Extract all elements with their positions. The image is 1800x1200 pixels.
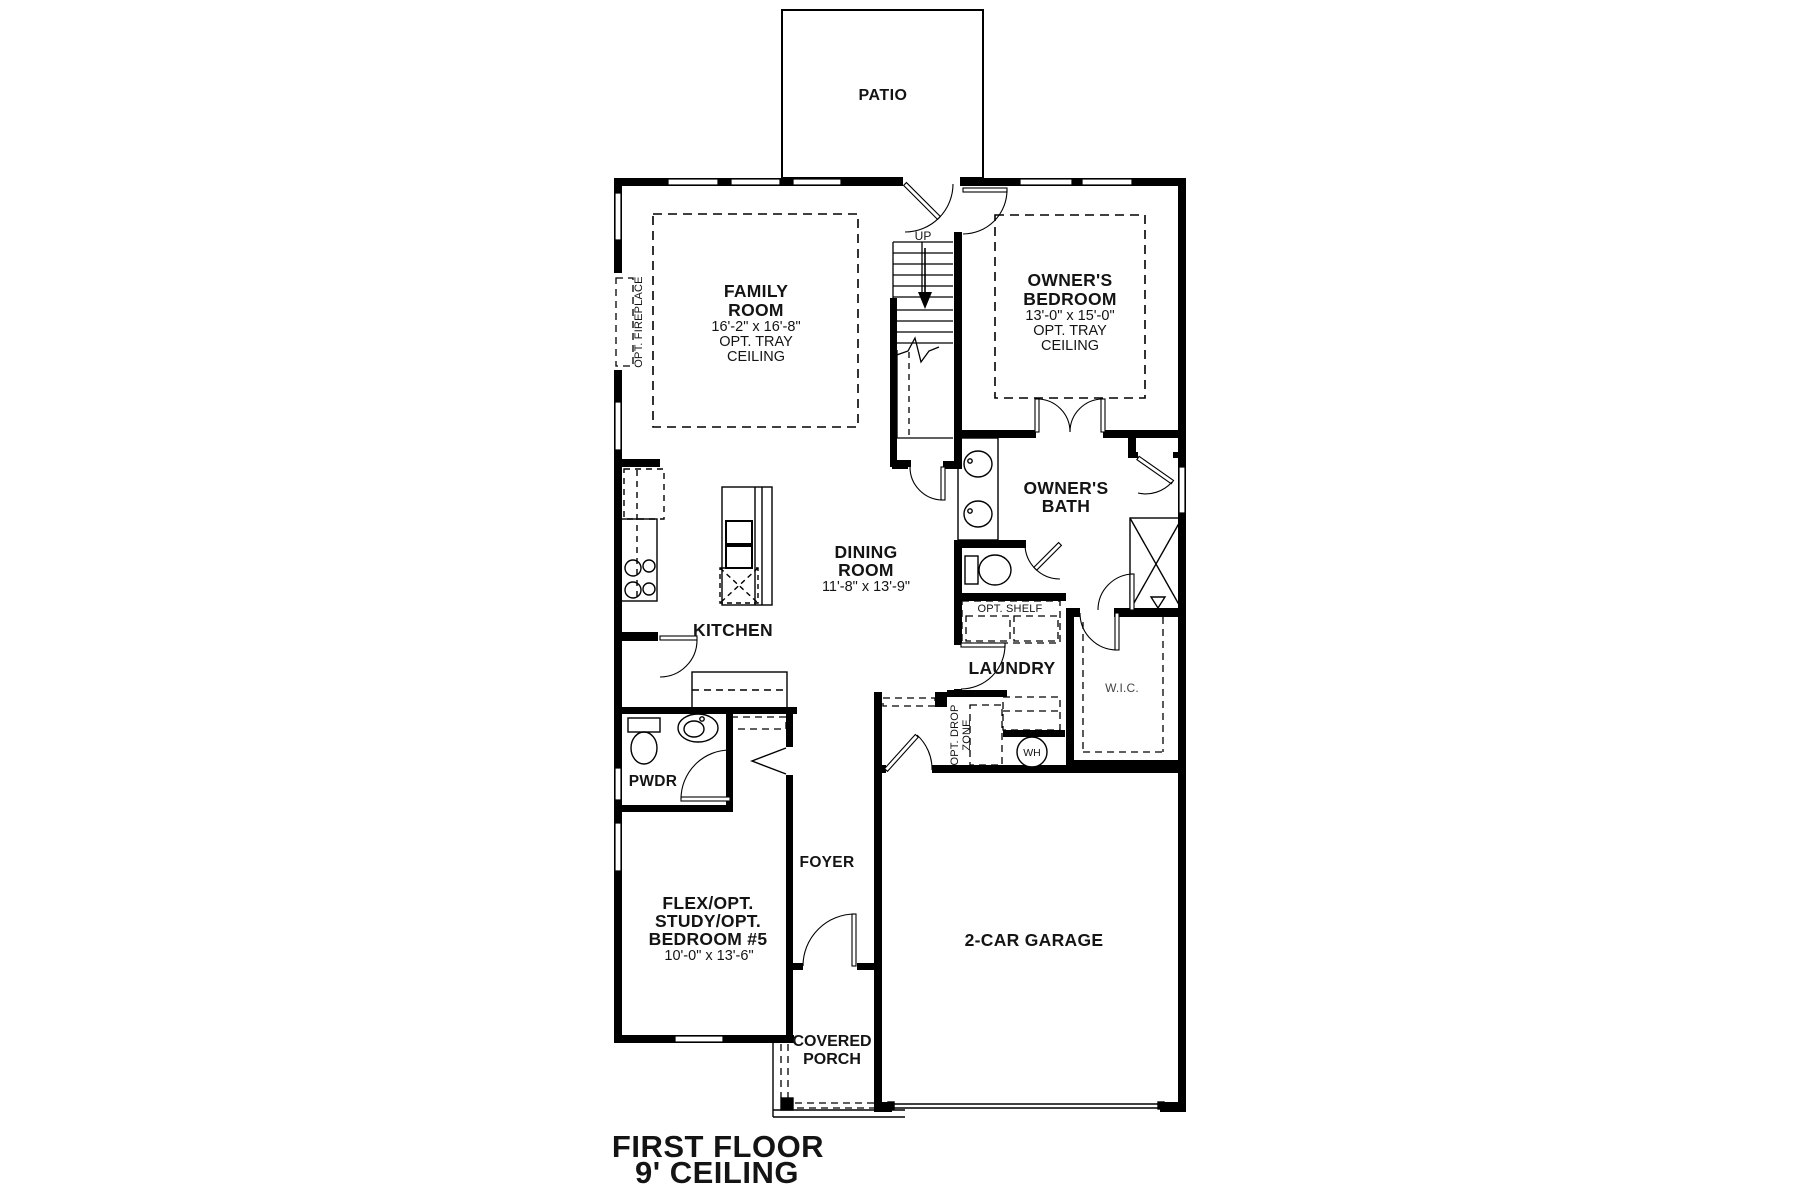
pwdr-door-arc bbox=[681, 750, 730, 799]
up-label: UP bbox=[915, 229, 932, 243]
dining-room-label-2: ROOM bbox=[838, 560, 894, 580]
laundry-door-leaf bbox=[961, 643, 1005, 647]
owners-bedroom-label-1: OWNER'S bbox=[1027, 270, 1112, 290]
family-room-label-2: ROOM bbox=[728, 300, 784, 320]
stove-burner bbox=[625, 560, 641, 576]
stove-burner bbox=[643, 560, 655, 572]
stove-burner bbox=[643, 583, 655, 595]
shower-door-leaf bbox=[1130, 574, 1134, 610]
hall-opening-leaf bbox=[941, 467, 945, 500]
owners-bedroom-note-2: CEILING bbox=[1041, 338, 1099, 354]
covered-porch-label-1: COVERED bbox=[792, 1033, 871, 1050]
wall-oven bbox=[726, 521, 752, 544]
sink bbox=[964, 501, 992, 527]
toilet-bowl bbox=[979, 555, 1011, 585]
opt-fireplace-label: OPT. FIREPLACE bbox=[633, 276, 645, 367]
garage-label: 2-CAR GARAGE bbox=[965, 930, 1104, 950]
kitchen-door-leaf bbox=[660, 636, 697, 640]
pwdr-door-leaf bbox=[681, 797, 730, 801]
owners-bedroom-note-1: OPT. TRAY bbox=[1033, 323, 1107, 339]
flex-label-3: BEDROOM #5 bbox=[649, 929, 768, 949]
floor-plan-page: WH PATIO FAMILY ROOM 16'-2" x 16'-8" OPT… bbox=[0, 0, 1800, 1200]
foyer-closet-shelf bbox=[883, 698, 935, 706]
owners-bedroom-label-2: BEDROOM bbox=[1023, 289, 1117, 309]
wic-door-leaf bbox=[1115, 613, 1119, 650]
wic-door-arc bbox=[1080, 613, 1117, 650]
coat-closet-shelf bbox=[731, 717, 786, 729]
pwdr-label: PWDR bbox=[629, 773, 678, 790]
family-room-dims: 16'-2" x 16'-8" bbox=[711, 319, 800, 335]
owners-bedroom-dims: 13'-0" x 15'-0" bbox=[1025, 308, 1114, 324]
shower-door-arc bbox=[1098, 574, 1134, 610]
stairs bbox=[891, 242, 953, 438]
bath-double-door-leaf bbox=[1101, 399, 1105, 432]
covered-porch-label-2: PORCH bbox=[803, 1051, 861, 1068]
bath-double-door-arc bbox=[1070, 399, 1103, 432]
shower-head bbox=[1151, 597, 1165, 608]
patio-label: PATIO bbox=[858, 87, 907, 104]
family-room-label-1: FAMILY bbox=[724, 281, 788, 301]
toilet-tank bbox=[628, 718, 660, 732]
bedroom-door-arc bbox=[963, 190, 1007, 234]
patio-door-leaf bbox=[904, 183, 941, 220]
linen-door-leaf bbox=[1137, 456, 1174, 483]
wic-label: W.I.C. bbox=[1105, 681, 1139, 695]
family-room-note-2: CEILING bbox=[727, 349, 785, 365]
refrigerator bbox=[624, 469, 664, 519]
stove-burner bbox=[625, 582, 641, 598]
washer-dryer bbox=[1003, 697, 1060, 730]
opt-shelf-label: OPT. SHELF bbox=[978, 603, 1043, 615]
wall-oven bbox=[726, 546, 752, 568]
toilet-door-leaf bbox=[1034, 543, 1062, 571]
toilet-bowl bbox=[631, 732, 657, 764]
owners-bath-label-2: BATH bbox=[1042, 496, 1091, 516]
plan-title-line-2: 9' CEILING bbox=[635, 1155, 799, 1190]
garage-door bbox=[888, 1102, 1164, 1109]
family-room-note-1: OPT. TRAY bbox=[719, 334, 793, 350]
bifold-door bbox=[752, 748, 786, 774]
faucet bbox=[700, 717, 704, 721]
faucet bbox=[968, 509, 972, 513]
vanity bbox=[958, 438, 998, 540]
sink bbox=[964, 451, 992, 477]
front-door-arc bbox=[803, 914, 855, 966]
water-heater: WH bbox=[1017, 737, 1047, 767]
kitchen-fixtures bbox=[620, 469, 787, 708]
faucet bbox=[968, 459, 972, 463]
laundry-label: LAUNDRY bbox=[968, 658, 1055, 678]
owners-bath-label-1: OWNER'S bbox=[1023, 478, 1108, 498]
dining-room-label-1: DINING bbox=[834, 542, 897, 562]
wh-label: WH bbox=[1023, 747, 1041, 759]
dining-room-dims: 11'-8" x 13'-9" bbox=[822, 579, 910, 595]
flex-dims: 10'-0" x 13'-6" bbox=[664, 948, 753, 964]
bath-double-door-leaf bbox=[1035, 399, 1039, 432]
kitchen-label: KITCHEN bbox=[693, 620, 773, 640]
floor-plan-drawing: WH PATIO FAMILY ROOM 16'-2" x 16'-8" OPT… bbox=[0, 0, 1800, 1200]
front-door-leaf bbox=[852, 914, 856, 966]
flex-label-2: STUDY/OPT. bbox=[655, 911, 761, 931]
bedroom-door-leaf bbox=[963, 188, 1007, 192]
flex-label-1: FLEX/OPT. bbox=[662, 893, 753, 913]
hall-opening-arc bbox=[910, 467, 943, 500]
opt-drop-zone-box bbox=[970, 705, 1002, 765]
linen-door-arc bbox=[1138, 482, 1172, 494]
opt-dishwasher bbox=[720, 568, 758, 603]
opt-drop-zone-label-1: OPT. DROP bbox=[949, 704, 961, 765]
opt-drop-zone-label-2: ZONE bbox=[961, 719, 973, 750]
bath-double-door-arc bbox=[1037, 399, 1070, 432]
toilet-tank bbox=[965, 556, 978, 584]
foyer-label: FOYER bbox=[800, 854, 855, 871]
